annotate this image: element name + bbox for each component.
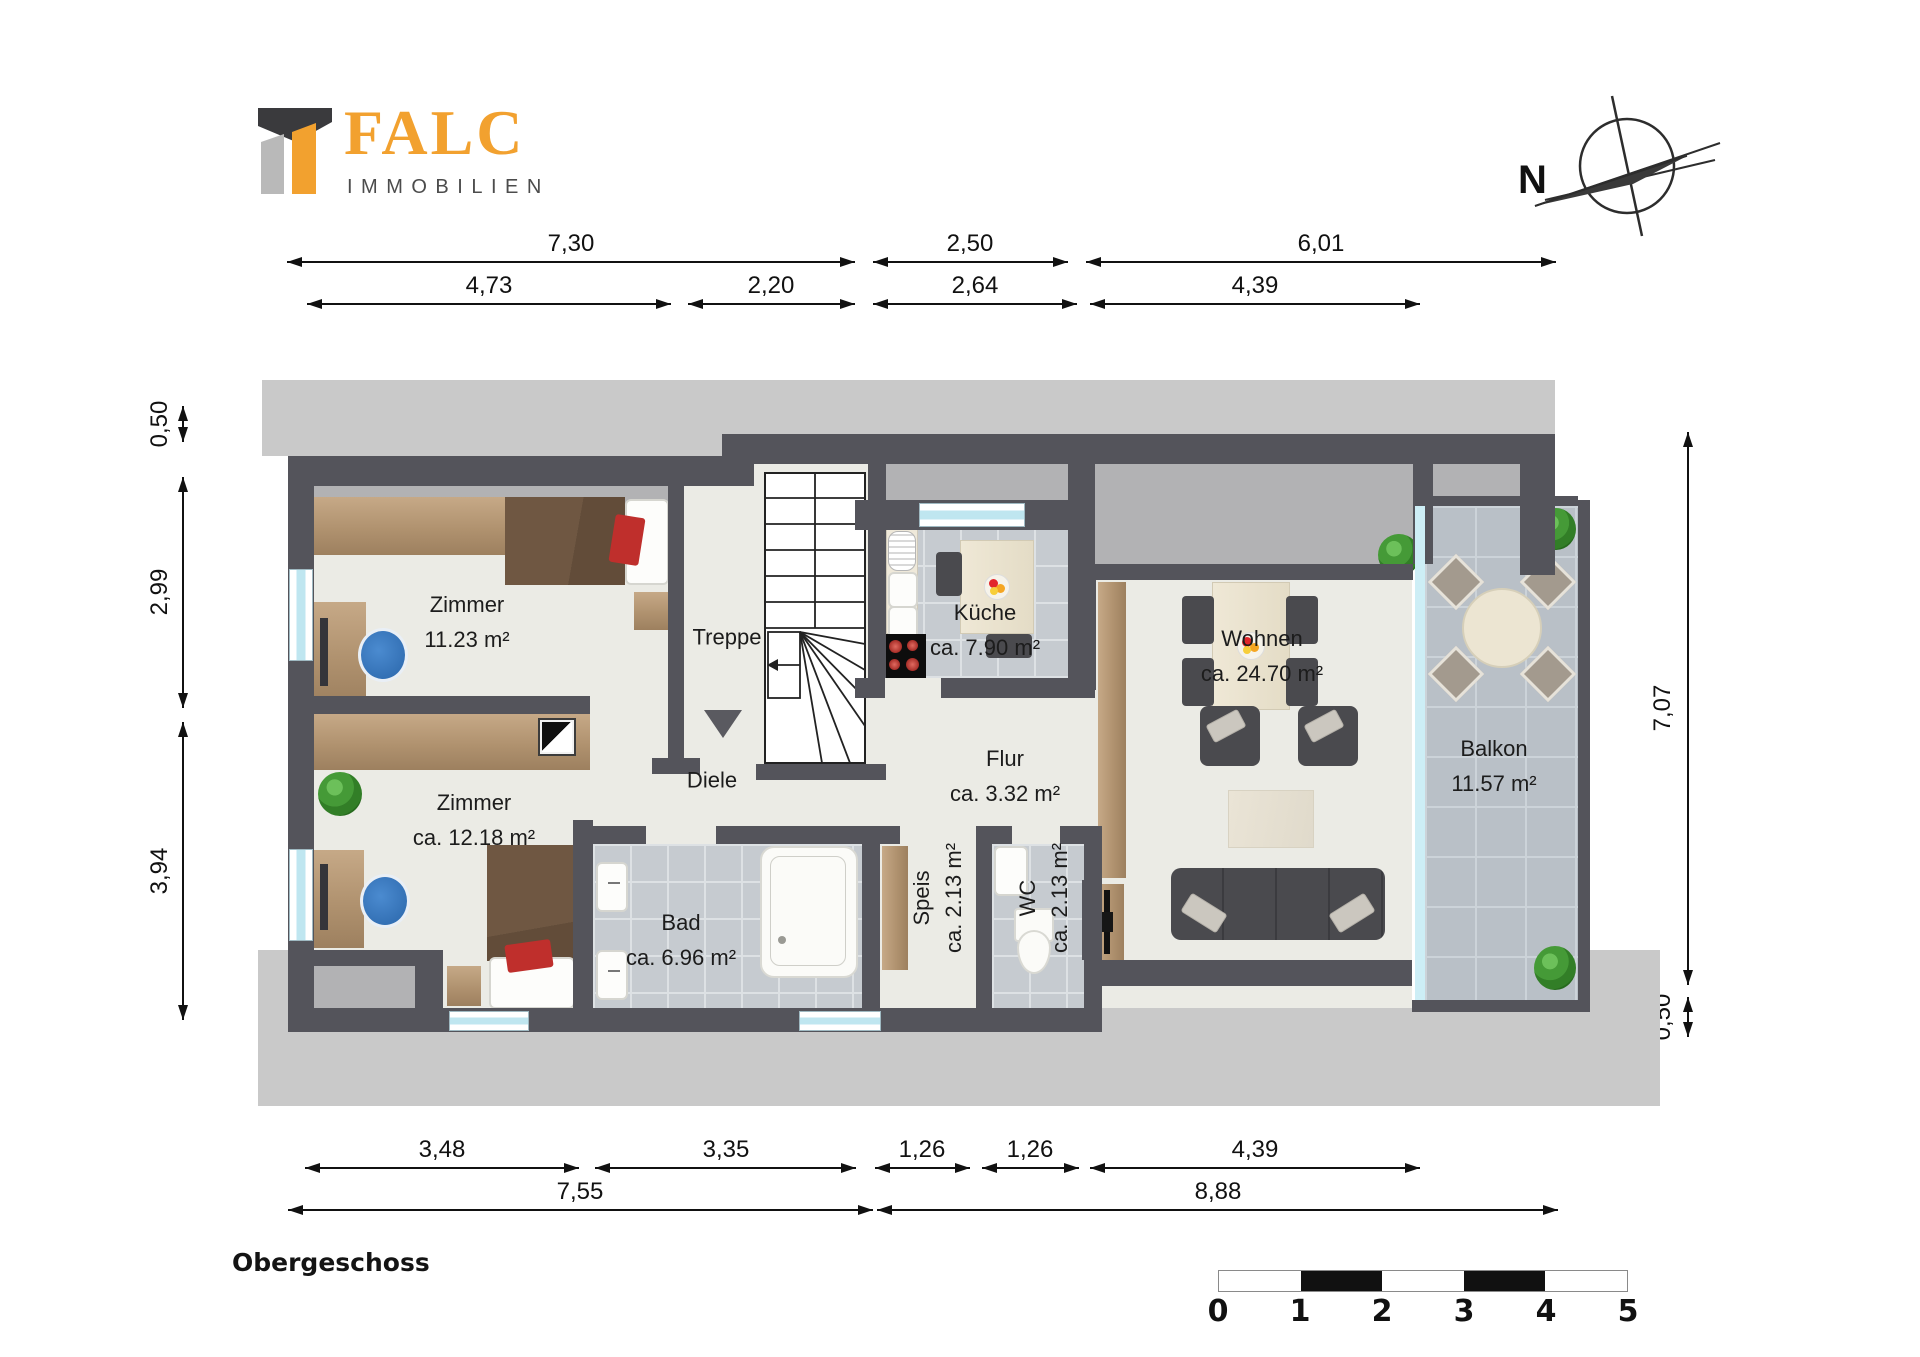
wall bbox=[976, 826, 992, 1008]
boiler-icon bbox=[888, 531, 916, 571]
backdrop bbox=[262, 1032, 1102, 1106]
stove-icon bbox=[884, 634, 926, 678]
wardrobe-icon bbox=[1098, 582, 1126, 878]
room-label-treppe: Treppe bbox=[693, 619, 762, 654]
dim-arrow bbox=[877, 1209, 1558, 1211]
sofa-icon bbox=[1171, 868, 1385, 940]
room-label-balkon: Balkon11.57 m² bbox=[1451, 731, 1536, 801]
window bbox=[920, 504, 1024, 526]
dim-arrow bbox=[873, 303, 1077, 305]
dim-label: 1,26 bbox=[1007, 1136, 1054, 1164]
dim-arrow bbox=[287, 261, 855, 263]
window bbox=[450, 1012, 528, 1030]
wall bbox=[1578, 500, 1590, 1012]
dim-label: 2,20 bbox=[748, 272, 795, 300]
floorplan-page: FALC IMMOBILIEN N 7,30 2,50 6,01 4,73 2,… bbox=[0, 0, 1920, 1357]
window bbox=[290, 570, 312, 660]
desk-chair-icon bbox=[358, 628, 408, 682]
backdrop bbox=[1588, 950, 1660, 1106]
north-label: N bbox=[1518, 158, 1547, 203]
nightstand-icon bbox=[634, 592, 668, 630]
dim-arrow bbox=[182, 477, 184, 708]
chair-icon bbox=[936, 552, 962, 596]
dim-label: 7,07 bbox=[1649, 685, 1677, 732]
dim-label: 0,50 bbox=[146, 401, 174, 448]
room-label-wc: WCca. 2.13 m² bbox=[1012, 843, 1076, 953]
dim-arrow bbox=[182, 722, 184, 1020]
washbasin-icon bbox=[596, 862, 628, 912]
room-label-flur: Flurca. 3.32 m² bbox=[950, 741, 1060, 811]
dim-arrow bbox=[982, 1167, 1079, 1169]
scale-tick: 2 bbox=[1372, 1294, 1393, 1329]
storage-shelf-icon bbox=[882, 846, 908, 970]
floor-title: Obergeschoss bbox=[232, 1248, 430, 1277]
wall bbox=[862, 826, 880, 1008]
wall bbox=[288, 1008, 1102, 1032]
window bbox=[290, 850, 312, 940]
dim-label: 1,26 bbox=[899, 1136, 946, 1164]
armchair-icon bbox=[1298, 706, 1358, 766]
monitor-icon bbox=[320, 618, 328, 686]
dim-arrow bbox=[1687, 432, 1689, 985]
plant-icon bbox=[1534, 946, 1576, 990]
scale-tick: 0 bbox=[1208, 1294, 1229, 1329]
wall bbox=[415, 950, 443, 1008]
wall bbox=[880, 826, 900, 844]
dim-arrow bbox=[305, 1167, 579, 1169]
wall bbox=[716, 826, 880, 844]
wall bbox=[1095, 564, 1413, 580]
bottom-left-dormer bbox=[314, 966, 415, 1008]
dim-arrow bbox=[1090, 303, 1420, 305]
dim-label: 4,39 bbox=[1232, 272, 1279, 300]
dim-arrow bbox=[688, 303, 855, 305]
wall bbox=[1095, 960, 1412, 986]
dim-label: 4,73 bbox=[466, 272, 513, 300]
livingroom-roof-strip bbox=[1095, 464, 1413, 564]
wall bbox=[941, 678, 1095, 698]
dim-arrow bbox=[1086, 261, 1556, 263]
dim-label: 3,48 bbox=[419, 1136, 466, 1164]
wall bbox=[1082, 880, 1096, 960]
balcony-glass-wall bbox=[1415, 506, 1425, 1000]
dim-arrow bbox=[1090, 1167, 1420, 1169]
wall bbox=[868, 434, 886, 678]
dim-label: 7,55 bbox=[557, 1178, 604, 1206]
scale-tick: 4 bbox=[1536, 1294, 1557, 1329]
wall bbox=[992, 826, 1012, 844]
room-label-zimmer1: Zimmer11.23 m² bbox=[424, 587, 509, 657]
wall bbox=[668, 486, 684, 758]
dim-arrow bbox=[288, 1209, 873, 1211]
room-label-zimmer2: Zimmerca. 12.18 m² bbox=[413, 785, 535, 855]
room-label-bad: Badca. 6.96 m² bbox=[626, 905, 736, 975]
falc-logo-icon bbox=[256, 106, 338, 196]
wall bbox=[722, 434, 754, 486]
window bbox=[800, 1012, 880, 1030]
wall bbox=[1060, 826, 1084, 844]
nightstand-icon bbox=[447, 966, 481, 1006]
scale-bar bbox=[1218, 1270, 1628, 1292]
monitor-icon bbox=[320, 864, 328, 930]
wall bbox=[573, 820, 593, 1020]
scale-tick: 3 bbox=[1454, 1294, 1475, 1329]
stairs-icon bbox=[764, 472, 866, 764]
room-label-wohnen: Wohnenca. 24.70 m² bbox=[1201, 621, 1323, 691]
armchair-icon bbox=[1200, 706, 1260, 766]
kitchen-dormer bbox=[886, 464, 1068, 500]
dim-label: 8,88 bbox=[1195, 1178, 1242, 1206]
desk-chair-icon bbox=[360, 874, 410, 928]
wall bbox=[288, 456, 740, 486]
dim-label: 3,94 bbox=[146, 848, 174, 895]
kitchen-sink-icon bbox=[888, 572, 918, 608]
bed-icon bbox=[505, 497, 625, 585]
balcony-dormer bbox=[1433, 464, 1521, 496]
dim-label: 2,64 bbox=[952, 272, 999, 300]
wall bbox=[593, 826, 646, 844]
compass-icon bbox=[1515, 88, 1730, 243]
door-marker-icon bbox=[540, 720, 574, 754]
room-label-kueche: Kücheca. 7.90 m² bbox=[930, 595, 1040, 665]
dim-label: 4,39 bbox=[1232, 1136, 1279, 1164]
scale-tick: 1 bbox=[1290, 1294, 1311, 1329]
washbasin-icon bbox=[596, 950, 628, 1000]
plant-icon bbox=[318, 772, 362, 816]
dim-label: 7,30 bbox=[548, 230, 595, 258]
wall bbox=[855, 678, 885, 698]
wall bbox=[1082, 580, 1096, 690]
balcony-table-icon bbox=[1462, 588, 1542, 668]
brand-name: FALC bbox=[344, 96, 525, 170]
dim-arrow bbox=[873, 261, 1068, 263]
dim-label: 3,35 bbox=[703, 1136, 750, 1164]
room-label-speis: Speisca. 2.13 m² bbox=[906, 843, 970, 953]
backdrop bbox=[262, 380, 740, 456]
dim-arrow bbox=[595, 1167, 856, 1169]
dim-arrow bbox=[182, 406, 184, 442]
wall bbox=[288, 696, 590, 714]
dim-label: 2,99 bbox=[146, 569, 174, 616]
brand-subtitle: IMMOBILIEN bbox=[347, 176, 550, 199]
wall bbox=[756, 764, 886, 780]
dim-label: 6,01 bbox=[1298, 230, 1345, 258]
wall bbox=[1412, 1000, 1590, 1012]
stairs-down-arrow-icon bbox=[704, 710, 742, 738]
dim-arrow bbox=[875, 1167, 970, 1169]
dim-arrow bbox=[1687, 997, 1689, 1037]
bathtub-icon bbox=[760, 846, 858, 978]
rug-icon bbox=[1228, 790, 1314, 848]
backdrop bbox=[1412, 1012, 1590, 1106]
backdrop bbox=[740, 380, 1555, 434]
dim-arrow bbox=[307, 303, 671, 305]
scale-tick: 5 bbox=[1618, 1294, 1639, 1329]
wall bbox=[1413, 496, 1578, 506]
dim-label: 2,50 bbox=[947, 230, 994, 258]
room-label-diele: Diele bbox=[687, 762, 737, 797]
